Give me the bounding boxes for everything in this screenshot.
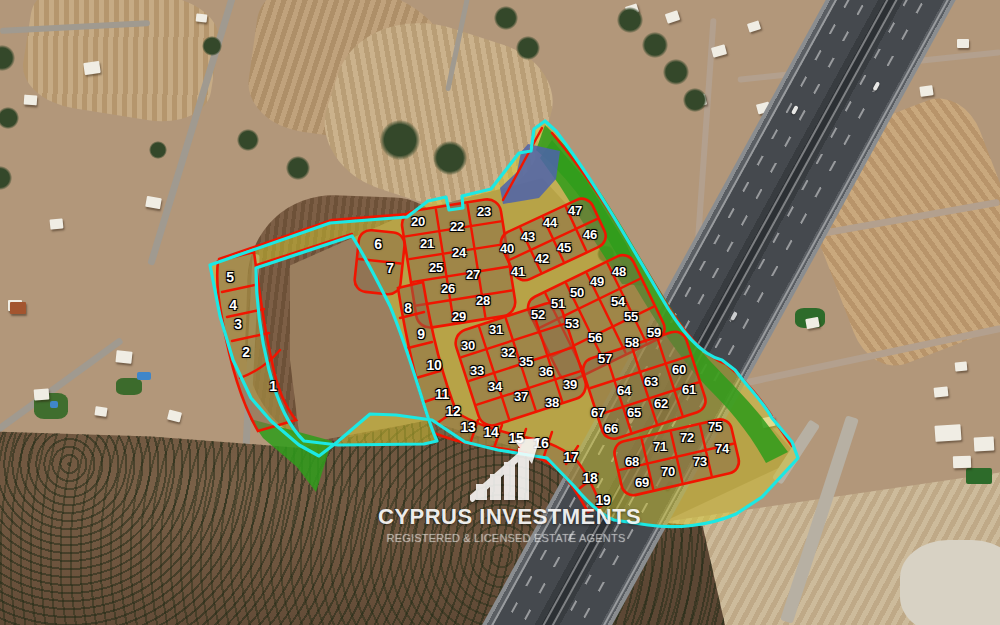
watermark-title: CYPRUS INVESTMENTS bbox=[378, 504, 634, 530]
plot-label-41: 41 bbox=[511, 265, 525, 278]
plot-label-2: 2 bbox=[242, 345, 250, 359]
plot-label-33: 33 bbox=[470, 364, 484, 377]
plot-label-60: 60 bbox=[672, 363, 686, 376]
plot-label-38: 38 bbox=[545, 396, 559, 409]
plot-label-42: 42 bbox=[535, 252, 549, 265]
plot-label-4: 4 bbox=[229, 298, 237, 312]
plot-label-61: 61 bbox=[682, 383, 696, 396]
plot-label-12: 12 bbox=[446, 404, 461, 418]
plot-label-54: 54 bbox=[611, 295, 625, 308]
plot-label-36: 36 bbox=[539, 365, 553, 378]
plot-label-51: 51 bbox=[551, 297, 565, 310]
plot-label-40: 40 bbox=[500, 242, 514, 255]
plot-label-10: 10 bbox=[427, 358, 442, 372]
plot-label-20: 20 bbox=[411, 215, 425, 228]
plot-label-31: 31 bbox=[489, 323, 503, 336]
plot-label-62: 62 bbox=[654, 397, 668, 410]
plot-label-55: 55 bbox=[624, 310, 638, 323]
plot-label-67: 67 bbox=[591, 406, 605, 419]
satellite-map: 1234567891011121314151617181920212223242… bbox=[0, 0, 1000, 625]
plot-label-58: 58 bbox=[625, 336, 639, 349]
plot-label-66: 66 bbox=[604, 422, 618, 435]
plot-label-9: 9 bbox=[417, 327, 425, 341]
watermark-subtitle: REGISTERED & LICENSED ESTATE AGENTS bbox=[378, 532, 634, 544]
plot-label-70: 70 bbox=[661, 465, 675, 478]
plot-label-75: 75 bbox=[708, 420, 722, 433]
plot-label-72: 72 bbox=[680, 431, 694, 444]
plot-label-43: 43 bbox=[521, 230, 535, 243]
plot-label-57: 57 bbox=[598, 352, 612, 365]
plot-label-1: 1 bbox=[269, 379, 277, 393]
plot-label-59: 59 bbox=[647, 326, 661, 339]
plot-label-56: 56 bbox=[588, 331, 602, 344]
plot-label-11: 11 bbox=[435, 387, 449, 401]
plot-label-26: 26 bbox=[441, 282, 455, 295]
plot-label-21: 21 bbox=[420, 237, 434, 250]
plot-label-34: 34 bbox=[488, 380, 502, 393]
plot-label-65: 65 bbox=[627, 406, 641, 419]
plot-label-47: 47 bbox=[568, 204, 582, 217]
plot-label-71: 71 bbox=[653, 440, 667, 453]
plot-label-13: 13 bbox=[461, 420, 476, 434]
plot-label-69: 69 bbox=[635, 476, 649, 489]
plot-label-52: 52 bbox=[531, 308, 545, 321]
growth-bars-arrow-icon bbox=[470, 438, 542, 502]
plot-label-50: 50 bbox=[570, 286, 584, 299]
plot-label-28: 28 bbox=[476, 294, 490, 307]
plot-label-3: 3 bbox=[234, 317, 242, 331]
plot-label-35: 35 bbox=[519, 355, 533, 368]
plot-label-39: 39 bbox=[563, 378, 577, 391]
plot-label-7: 7 bbox=[386, 261, 394, 275]
plot-label-46: 46 bbox=[583, 228, 597, 241]
plot-label-8: 8 bbox=[404, 301, 412, 315]
plot-label-53: 53 bbox=[565, 317, 579, 330]
plot-label-5: 5 bbox=[226, 270, 234, 284]
plot-label-49: 49 bbox=[590, 275, 604, 288]
plot-label-45: 45 bbox=[557, 241, 571, 254]
plot-label-37: 37 bbox=[514, 390, 528, 403]
plot-label-29: 29 bbox=[452, 310, 466, 323]
plot-label-22: 22 bbox=[450, 220, 464, 233]
plot-label-23: 23 bbox=[477, 205, 491, 218]
plot-label-32: 32 bbox=[501, 346, 515, 359]
plot-label-48: 48 bbox=[612, 265, 626, 278]
plot-label-25: 25 bbox=[429, 261, 443, 274]
plot-label-74: 74 bbox=[715, 442, 729, 455]
plot-label-30: 30 bbox=[461, 339, 475, 352]
plot-label-63: 63 bbox=[644, 375, 658, 388]
plot-label-64: 64 bbox=[617, 384, 631, 397]
plot-label-14: 14 bbox=[484, 425, 499, 439]
plot-label-44: 44 bbox=[543, 216, 557, 229]
plot-label-6: 6 bbox=[374, 237, 382, 251]
plot-label-27: 27 bbox=[466, 268, 480, 281]
plot-label-73: 73 bbox=[693, 455, 707, 468]
plot-label-24: 24 bbox=[452, 246, 466, 259]
watermark: CYPRUS INVESTMENTS REGISTERED & LICENSED… bbox=[378, 438, 634, 544]
